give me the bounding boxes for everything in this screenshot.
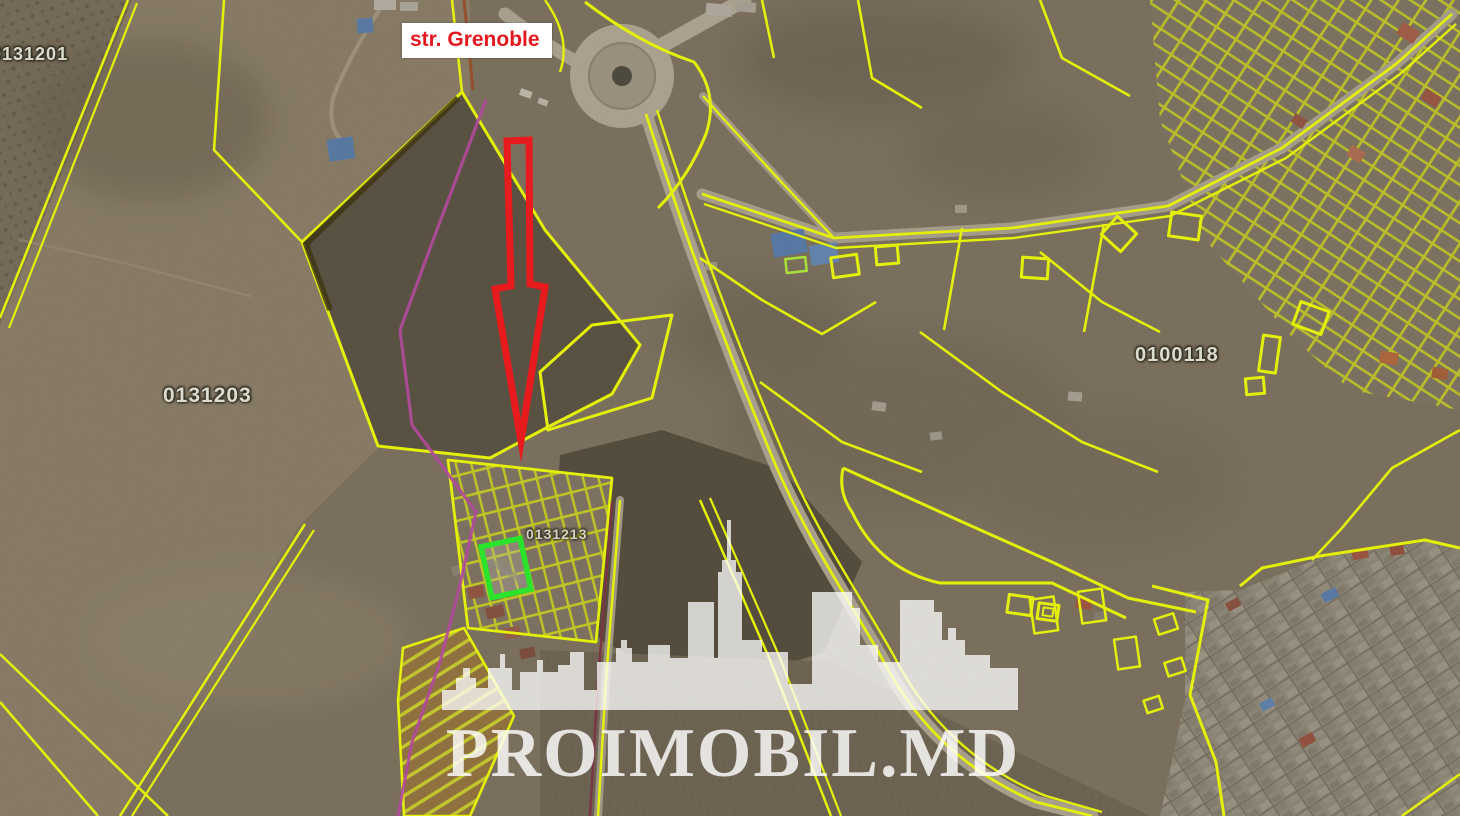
watermark-text: PROIMOBIL.MD xyxy=(433,714,1033,794)
watermark-layer xyxy=(0,0,1460,816)
map-canvas: 0131213 xyxy=(0,0,1460,816)
city-skyline-icon xyxy=(442,520,1018,710)
